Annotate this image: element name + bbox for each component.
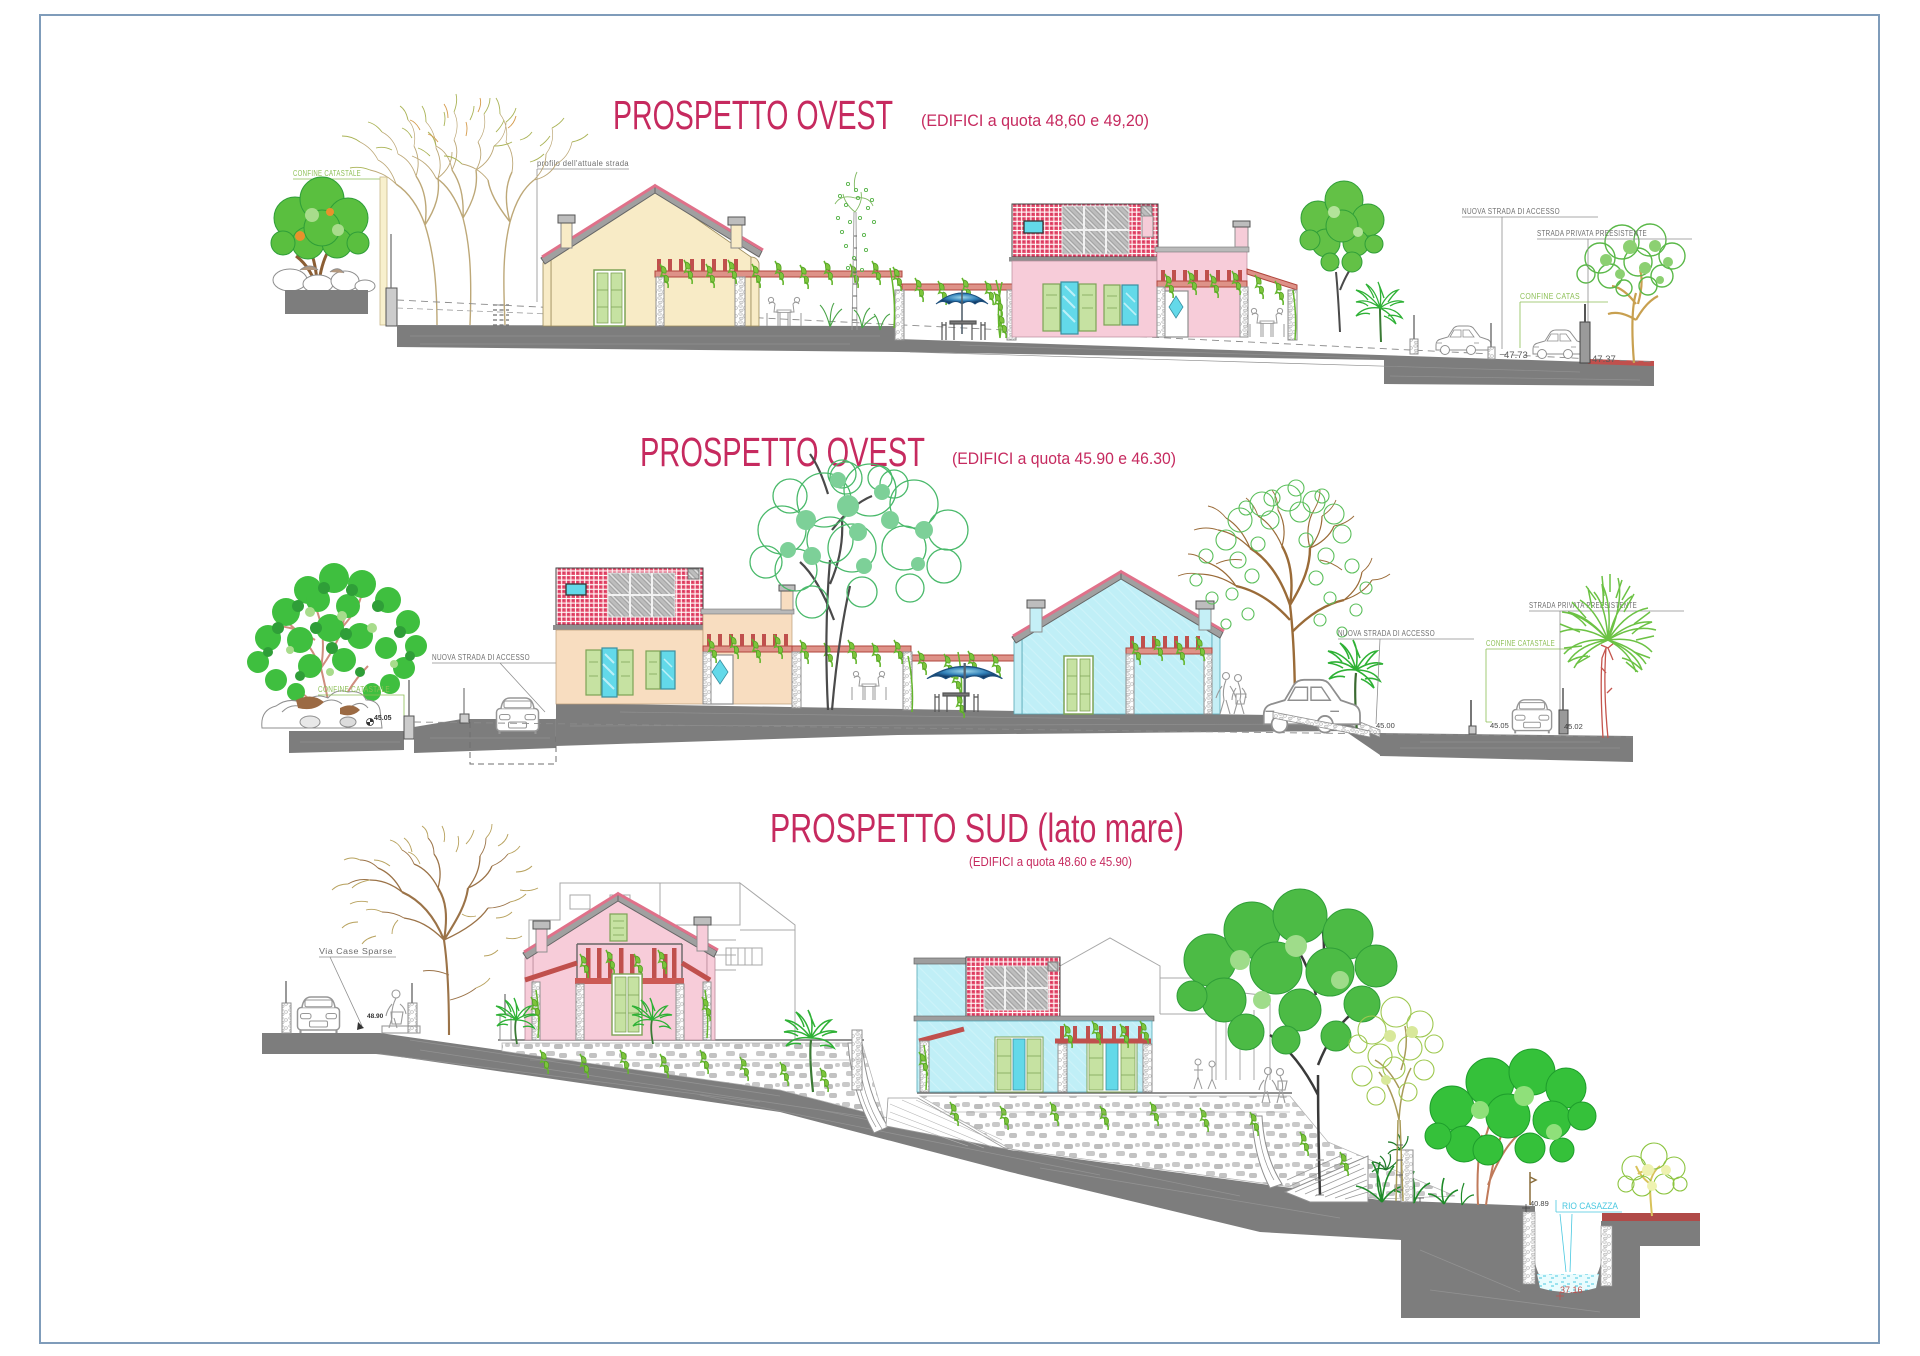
svg-text:PROSPETTO SUD (lato mare): PROSPETTO SUD (lato mare) [770,805,1184,851]
svg-text:RIO CASAZZA: RIO CASAZZA [1562,1201,1618,1211]
svg-text:NUOVA STRADA DI ACCESSO: NUOVA STRADA DI ACCESSO [1462,207,1560,216]
svg-text:NUOVA STRADA DI ACCESSO: NUOVA STRADA DI ACCESSO [1338,629,1435,638]
svg-text:(EDIFICI a quota 45.90 e 46.30: (EDIFICI a quota 45.90 e 46.30) [952,450,1176,468]
svg-text:47.37: 47.37 [1592,354,1616,365]
svg-text:profilo dell'attuale strada: profilo dell'attuale strada [537,159,629,168]
svg-text:PROSPETTO OVEST: PROSPETTO OVEST [613,92,893,138]
svg-text:37.16: 37.16 [1560,1285,1583,1295]
svg-text:45.05: 45.05 [374,715,392,722]
svg-text:(EDIFICI a quota 48,60 e 49,20: (EDIFICI a quota 48,60 e 49,20) [921,112,1149,130]
svg-text:CONFINE CATASTALE: CONFINE CATASTALE [318,685,390,694]
svg-text:CONFINE CATASTALE: CONFINE CATASTALE [1486,639,1555,648]
svg-text:47.73: 47.73 [1504,350,1528,361]
svg-text:45.00: 45.00 [1376,721,1395,730]
svg-text:45.05: 45.05 [1490,721,1509,730]
svg-text:CONFINE CATAS: CONFINE CATAS [1520,292,1580,301]
svg-text:40.89: 40.89 [1530,1199,1549,1208]
svg-text:PROSPETTO OVEST: PROSPETTO OVEST [640,429,925,475]
svg-text:STRADA PRIVATA PREESISTENTE: STRADA PRIVATA PREESISTENTE [1537,229,1647,238]
svg-text:Via Case Sparse: Via Case Sparse [319,947,393,956]
svg-text:48.90: 48.90 [367,1013,384,1020]
svg-text:CONFINE CATASTALE: CONFINE CATASTALE [293,169,361,178]
svg-text:(EDIFICI a quota 48.60 e 45.90: (EDIFICI a quota 48.60 e 45.90) [969,854,1132,869]
svg-text:45.02: 45.02 [1564,722,1583,731]
svg-text:NUOVA STRADA DI ACCESSO: NUOVA STRADA DI ACCESSO [432,653,530,662]
